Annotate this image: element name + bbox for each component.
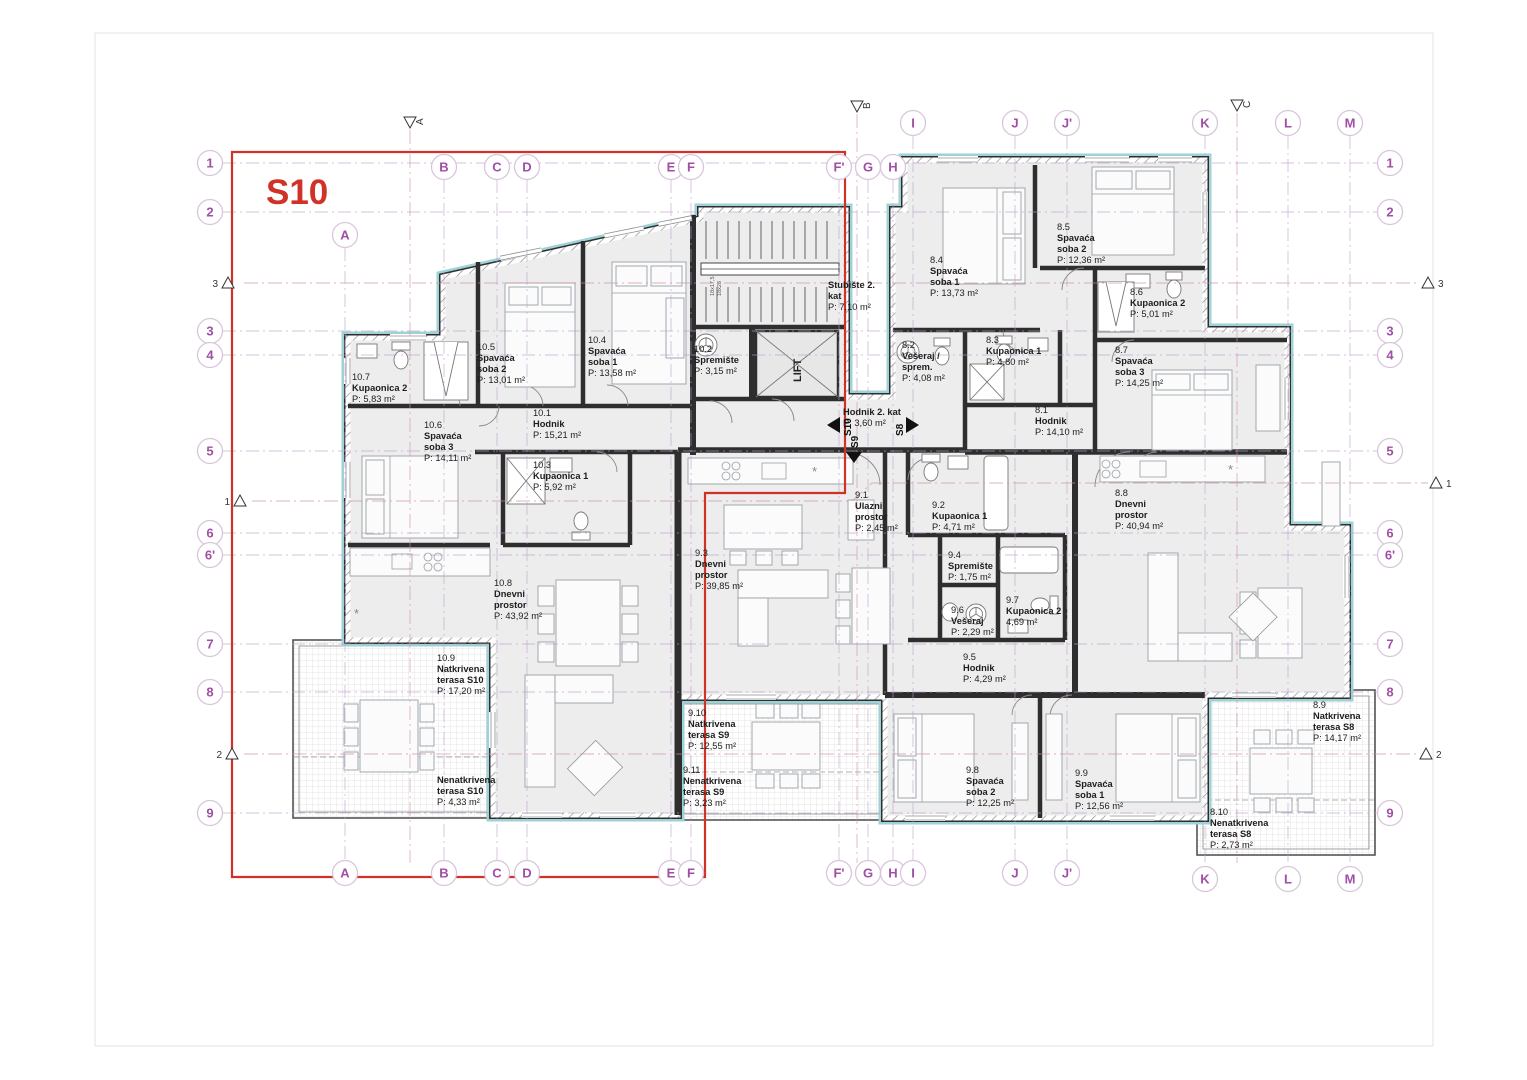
shower-icon bbox=[970, 364, 1004, 400]
grid-marker-D: D bbox=[515, 155, 540, 180]
svg-text:P: 4,29 m²: P: 4,29 m² bbox=[963, 674, 1006, 684]
toilet-icon bbox=[922, 454, 940, 481]
svg-text:9.2: 9.2 bbox=[932, 500, 945, 510]
terrace-table bbox=[1250, 730, 1314, 812]
grid-marker-6: 6 bbox=[1378, 521, 1403, 546]
grid-marker-B: B bbox=[432, 861, 457, 886]
svg-text:C: C bbox=[492, 160, 502, 175]
grid-marker-9: 9 bbox=[198, 801, 223, 826]
svg-text:Kupaonica 2: Kupaonica 2 bbox=[1006, 606, 1061, 616]
svg-text:Hodnik: Hodnik bbox=[1035, 416, 1067, 426]
svg-text:sprem.: sprem. bbox=[902, 362, 933, 372]
sink-icon bbox=[948, 456, 968, 469]
toilet-icon bbox=[1166, 272, 1182, 298]
svg-text:kat: kat bbox=[828, 291, 841, 301]
grid-marker-L: L bbox=[1276, 867, 1301, 892]
svg-text:10.1: 10.1 bbox=[533, 408, 551, 418]
svg-text:soba 1: soba 1 bbox=[1075, 790, 1104, 800]
svg-text:A: A bbox=[340, 866, 350, 881]
grid-marker-D: D bbox=[515, 861, 540, 886]
svg-text:8: 8 bbox=[1386, 685, 1393, 700]
svg-text:8.5: 8.5 bbox=[1057, 222, 1070, 232]
svg-text:8.10: 8.10 bbox=[1210, 807, 1228, 817]
bed bbox=[1152, 370, 1232, 450]
grid-marker-F: F bbox=[679, 861, 704, 886]
svg-text:Stubište 2.: Stubište 2. bbox=[828, 280, 875, 290]
svg-text:6': 6' bbox=[1385, 548, 1395, 563]
wardrobe bbox=[666, 298, 684, 358]
svg-text:9.5: 9.5 bbox=[963, 652, 976, 662]
grid-marker-8: 8 bbox=[1378, 680, 1403, 705]
svg-text:M: M bbox=[1345, 116, 1356, 131]
svg-text:Nenatkrivena: Nenatkrivena bbox=[683, 776, 742, 786]
dining-table bbox=[538, 580, 638, 666]
svg-text:9.10: 9.10 bbox=[688, 708, 706, 718]
kitchen-counter: * bbox=[1100, 456, 1265, 482]
svg-text:J: J bbox=[1011, 116, 1018, 131]
svg-text:8.8: 8.8 bbox=[1115, 488, 1128, 498]
svg-text:Kupaonica 1: Kupaonica 1 bbox=[986, 346, 1041, 356]
svg-text:*: * bbox=[1228, 462, 1233, 477]
svg-text:P: 4,33 m²: P: 4,33 m² bbox=[437, 797, 480, 807]
grid-marker-6': 6' bbox=[1378, 543, 1403, 568]
svg-text:P: 3,23 m²: P: 3,23 m² bbox=[683, 798, 726, 808]
svg-text:8.7: 8.7 bbox=[1115, 345, 1128, 355]
svg-text:P: 5,01 m²: P: 5,01 m² bbox=[1130, 309, 1173, 319]
svg-text:Spavaća: Spavaća bbox=[477, 353, 516, 363]
svg-text:9.8: 9.8 bbox=[966, 765, 979, 775]
svg-text:Kupaonica 2: Kupaonica 2 bbox=[352, 383, 407, 393]
unit-s10-title: S10 bbox=[266, 173, 328, 212]
shower-icon bbox=[1098, 282, 1134, 332]
svg-text:8.4: 8.4 bbox=[930, 255, 943, 265]
svg-text:terasa S10: terasa S10 bbox=[437, 675, 484, 685]
svg-text:F': F' bbox=[833, 160, 844, 175]
svg-text:1: 1 bbox=[1386, 156, 1393, 171]
grid-marker-F': F' bbox=[827, 861, 852, 886]
grid-marker-A: A bbox=[333, 223, 358, 248]
svg-text:soba 2: soba 2 bbox=[1057, 244, 1086, 254]
grid-marker-H: H bbox=[881, 155, 906, 180]
svg-text:8.9: 8.9 bbox=[1313, 700, 1326, 710]
grid-marker-G: G bbox=[856, 861, 881, 886]
terrace-table bbox=[344, 700, 434, 772]
section-marker-2: 2 bbox=[216, 748, 238, 761]
svg-text:P: 5,92 m²: P: 5,92 m² bbox=[533, 482, 576, 492]
svg-text:Spavaća: Spavaća bbox=[588, 346, 627, 356]
svg-text:P: 1,75 m²: P: 1,75 m² bbox=[948, 572, 991, 582]
svg-text:terasa S9: terasa S9 bbox=[683, 787, 724, 797]
svg-text:1: 1 bbox=[224, 497, 230, 508]
section-marker-C: C bbox=[1231, 100, 1253, 111]
svg-text:prostor: prostor bbox=[1115, 510, 1148, 520]
wardrobe bbox=[1322, 462, 1340, 526]
svg-text:H: H bbox=[888, 160, 897, 175]
svg-text:C: C bbox=[492, 866, 502, 881]
grid-marker-I: I bbox=[901, 111, 926, 136]
svg-text:10.8: 10.8 bbox=[494, 578, 512, 588]
svg-text:3: 3 bbox=[1386, 324, 1393, 339]
svg-text:D: D bbox=[522, 160, 531, 175]
svg-text:C: C bbox=[1242, 101, 1253, 108]
svg-text:Hodnik 2. kat: Hodnik 2. kat bbox=[843, 407, 901, 417]
svg-text:2: 2 bbox=[1386, 205, 1393, 220]
svg-text:P: 14,10 m²: P: 14,10 m² bbox=[1035, 427, 1083, 437]
section-marker-2: 2 bbox=[1420, 748, 1442, 761]
svg-text:J': J' bbox=[1062, 866, 1072, 881]
svg-text:soba 1: soba 1 bbox=[930, 277, 959, 287]
bed bbox=[505, 283, 575, 387]
section-marker-1: 1 bbox=[224, 495, 246, 508]
svg-text:prostor: prostor bbox=[695, 570, 728, 580]
svg-text:P: 12,36 m²: P: 12,36 m² bbox=[1057, 255, 1105, 265]
grid-marker-7: 7 bbox=[1378, 632, 1403, 657]
shower-icon bbox=[424, 342, 468, 400]
svg-text:P: 39,85 m²: P: 39,85 m² bbox=[695, 581, 743, 591]
svg-text:M: M bbox=[1345, 872, 1356, 887]
svg-text:J: J bbox=[1011, 866, 1018, 881]
svg-text:7: 7 bbox=[1386, 637, 1393, 652]
svg-text:Spavaća: Spavaća bbox=[966, 776, 1005, 786]
building: 18x17,5 18x28 LIFT bbox=[293, 156, 1375, 855]
svg-text:6: 6 bbox=[206, 526, 213, 541]
dining-table bbox=[836, 568, 890, 644]
grid-marker-G: G bbox=[856, 155, 881, 180]
svg-text:A: A bbox=[340, 228, 350, 243]
svg-text:J': J' bbox=[1062, 116, 1072, 131]
section-marker-B: B bbox=[851, 101, 873, 112]
svg-text:Vešeraj /: Vešeraj / bbox=[902, 351, 940, 361]
svg-text:P: 13,01 m²: P: 13,01 m² bbox=[477, 375, 525, 385]
svg-text:8.3: 8.3 bbox=[986, 335, 999, 345]
svg-text:I: I bbox=[911, 866, 915, 881]
grid-marker-1: 1 bbox=[198, 151, 223, 176]
svg-text:Ulazni: Ulazni bbox=[855, 501, 882, 511]
svg-text:P: 7,10 m²: P: 7,10 m² bbox=[828, 302, 871, 312]
svg-text:P: 13,58 m²: P: 13,58 m² bbox=[588, 368, 636, 378]
svg-text:H: H bbox=[888, 866, 897, 881]
sink-icon bbox=[550, 458, 572, 472]
svg-text:Spavaća: Spavaća bbox=[1057, 233, 1096, 243]
svg-text:Hodnik: Hodnik bbox=[533, 419, 565, 429]
svg-text:Spremište: Spremište bbox=[948, 561, 993, 571]
svg-text:soba 2: soba 2 bbox=[966, 787, 995, 797]
svg-text:Vešeraj: Vešeraj bbox=[951, 616, 984, 626]
svg-text:9.11: 9.11 bbox=[683, 765, 700, 775]
svg-text:Spavaća: Spavaća bbox=[1115, 356, 1154, 366]
svg-text:Nenatkrivena: Nenatkrivena bbox=[437, 775, 496, 785]
grid-marker-7: 7 bbox=[198, 632, 223, 657]
grid-marker-J: J bbox=[1003, 111, 1028, 136]
grid-marker-5: 5 bbox=[198, 439, 223, 464]
elevator: LIFT bbox=[756, 331, 838, 397]
svg-text:9: 9 bbox=[1386, 806, 1393, 821]
svg-text:A: A bbox=[415, 118, 426, 125]
svg-text:Spremište: Spremište bbox=[694, 355, 739, 365]
svg-text:P: 43,92 m²: P: 43,92 m² bbox=[494, 611, 542, 621]
grid-marker-5: 5 bbox=[1378, 439, 1403, 464]
grid-marker-A: A bbox=[333, 861, 358, 886]
svg-text:P: 12,56 m²: P: 12,56 m² bbox=[1075, 801, 1123, 811]
grid-marker-L: L bbox=[1276, 111, 1301, 136]
svg-text:S8: S8 bbox=[895, 423, 906, 436]
svg-text:F: F bbox=[687, 160, 695, 175]
svg-text:8: 8 bbox=[206, 685, 213, 700]
svg-text:P: 2,73 m²: P: 2,73 m² bbox=[1210, 840, 1253, 850]
grid-marker-F': F' bbox=[827, 155, 852, 180]
svg-text:2: 2 bbox=[206, 205, 213, 220]
svg-text:P: 15,21 m²: P: 15,21 m² bbox=[533, 430, 581, 440]
section-marker-3: 3 bbox=[212, 277, 234, 290]
svg-text:P: 14,25 m²: P: 14,25 m² bbox=[1115, 378, 1163, 388]
svg-text:Natkrivena: Natkrivena bbox=[1313, 711, 1361, 721]
svg-text:4: 4 bbox=[1386, 348, 1394, 363]
svg-text:prostor: prostor bbox=[494, 600, 527, 610]
svg-text:S9: S9 bbox=[850, 435, 861, 448]
svg-text:soba 3: soba 3 bbox=[424, 442, 453, 452]
svg-text:F: F bbox=[687, 866, 695, 881]
grid-marker-M: M bbox=[1338, 867, 1363, 892]
svg-text:*: * bbox=[354, 606, 359, 621]
svg-text:3: 3 bbox=[1438, 279, 1444, 290]
svg-text:6': 6' bbox=[205, 548, 215, 563]
svg-text:*: * bbox=[812, 464, 817, 479]
svg-text:G: G bbox=[863, 866, 873, 881]
svg-text:L: L bbox=[1284, 872, 1292, 887]
svg-text:P: 2,45 m²: P: 2,45 m² bbox=[855, 523, 898, 533]
svg-text:8.1: 8.1 bbox=[1035, 405, 1048, 415]
bathtub-icon bbox=[1000, 547, 1058, 573]
floor-plan-drawing: 18x17,5 18x28 LIFT bbox=[0, 0, 1527, 1080]
svg-text:P: 12,25 m²: P: 12,25 m² bbox=[966, 798, 1014, 808]
wardrobe bbox=[1256, 365, 1280, 431]
svg-text:1: 1 bbox=[206, 156, 213, 171]
wardrobe bbox=[1046, 714, 1062, 800]
toilet-icon bbox=[392, 342, 410, 369]
svg-text:10.2: 10.2 bbox=[694, 344, 712, 354]
svg-text:P: 4,71 m²: P: 4,71 m² bbox=[932, 522, 975, 532]
grid-marker-C: C bbox=[485, 861, 510, 886]
svg-text:9.4: 9.4 bbox=[948, 550, 961, 560]
svg-text:Hodnik: Hodnik bbox=[963, 663, 995, 673]
svg-text:P: 17,20 m²: P: 17,20 m² bbox=[437, 686, 485, 696]
svg-text:Dnevni: Dnevni bbox=[494, 589, 525, 599]
grid-marker-J': J' bbox=[1055, 861, 1080, 886]
svg-text:G: G bbox=[863, 160, 873, 175]
dining-table bbox=[724, 505, 802, 565]
svg-text:Nenatkrivena: Nenatkrivena bbox=[1210, 818, 1269, 828]
svg-text:Spavaća: Spavaća bbox=[930, 266, 969, 276]
svg-text:Spavaća: Spavaća bbox=[1075, 779, 1114, 789]
svg-text:F': F' bbox=[833, 866, 844, 881]
svg-text:9.9: 9.9 bbox=[1075, 768, 1088, 778]
grid-marker-B: B bbox=[432, 155, 457, 180]
grid-marker-4: 4 bbox=[198, 343, 223, 368]
terrace-table bbox=[752, 704, 820, 788]
svg-text:9: 9 bbox=[206, 806, 213, 821]
svg-text:P: 4,80 m²: P: 4,80 m² bbox=[986, 357, 1029, 367]
grid-marker-8: 8 bbox=[198, 680, 223, 705]
svg-text:Dnevni: Dnevni bbox=[1115, 499, 1146, 509]
svg-text:10.7: 10.7 bbox=[352, 372, 370, 382]
grid-marker-2: 2 bbox=[198, 200, 223, 225]
svg-text:5: 5 bbox=[206, 444, 213, 459]
svg-text:9.1: 9.1 bbox=[855, 490, 868, 500]
svg-text:4: 4 bbox=[206, 348, 214, 363]
svg-text:P: 4,08 m²: P: 4,08 m² bbox=[902, 373, 945, 383]
svg-text:Kupaonica 2: Kupaonica 2 bbox=[1130, 298, 1185, 308]
bed bbox=[894, 714, 974, 802]
grid-marker-J': J' bbox=[1055, 111, 1080, 136]
svg-text:10.9: 10.9 bbox=[437, 653, 455, 663]
svg-text:terasa S8: terasa S8 bbox=[1313, 722, 1354, 732]
grid-marker-J: J bbox=[1003, 861, 1028, 886]
bed bbox=[1092, 167, 1174, 255]
svg-text:K: K bbox=[1200, 116, 1210, 131]
svg-text:9.7: 9.7 bbox=[1006, 595, 1019, 605]
svg-text:D: D bbox=[522, 866, 531, 881]
svg-text:P: 5,83 m²: P: 5,83 m² bbox=[352, 394, 395, 404]
svg-text:Natkrivena: Natkrivena bbox=[437, 664, 485, 674]
svg-text:2: 2 bbox=[1436, 750, 1442, 761]
svg-text:9.3: 9.3 bbox=[695, 548, 708, 558]
grid-marker-3: 3 bbox=[1378, 319, 1403, 344]
grid-marker-K: K bbox=[1193, 111, 1218, 136]
grid-marker-1: 1 bbox=[1378, 151, 1403, 176]
svg-text:terasa S8: terasa S8 bbox=[1210, 829, 1251, 839]
svg-text:5: 5 bbox=[1386, 444, 1393, 459]
svg-text:10.5: 10.5 bbox=[477, 342, 495, 352]
svg-text:E: E bbox=[667, 160, 676, 175]
svg-text:terasa S9: terasa S9 bbox=[688, 730, 729, 740]
svg-text:3: 3 bbox=[206, 324, 213, 339]
svg-text:E: E bbox=[667, 866, 676, 881]
svg-text:1: 1 bbox=[1446, 479, 1452, 490]
svg-text:10.3: 10.3 bbox=[533, 460, 551, 470]
grid-marker-K: K bbox=[1193, 867, 1218, 892]
grid-marker-C: C bbox=[485, 155, 510, 180]
grid-marker-6': 6' bbox=[198, 543, 223, 568]
sink-icon bbox=[357, 344, 377, 358]
svg-text:K: K bbox=[1200, 872, 1210, 887]
svg-text:B: B bbox=[439, 866, 448, 881]
svg-text:7: 7 bbox=[206, 637, 213, 652]
svg-text:Kupaonica 1: Kupaonica 1 bbox=[533, 471, 588, 481]
bed bbox=[1116, 714, 1200, 802]
svg-text:soba 2: soba 2 bbox=[477, 364, 506, 374]
svg-text:2: 2 bbox=[216, 750, 222, 761]
lift-label: LIFT bbox=[792, 359, 804, 382]
svg-text:terasa S10: terasa S10 bbox=[437, 786, 484, 796]
grid-marker-3: 3 bbox=[198, 319, 223, 344]
svg-text:S10: S10 bbox=[843, 418, 854, 436]
svg-text:Spavaća: Spavaća bbox=[424, 431, 463, 441]
stairs-dimension: 18x17,5 bbox=[710, 276, 716, 296]
svg-text:Kupaonica 1: Kupaonica 1 bbox=[932, 511, 987, 521]
grid-marker-F: F bbox=[679, 155, 704, 180]
bathtub-icon bbox=[984, 456, 1008, 530]
svg-text:I: I bbox=[911, 116, 915, 131]
svg-text:P: 13,73 m²: P: 13,73 m² bbox=[930, 288, 978, 298]
grid-marker-6: 6 bbox=[198, 521, 223, 546]
section-marker-A: A bbox=[404, 117, 426, 128]
svg-text:P: 14,11 m²: P: 14,11 m² bbox=[424, 453, 471, 463]
svg-text:Natkrivena: Natkrivena bbox=[688, 719, 736, 729]
svg-text:P: 12,55 m²: P: 12,55 m² bbox=[688, 741, 736, 751]
svg-text:9.6: 9.6 bbox=[951, 605, 964, 615]
svg-text:B: B bbox=[439, 160, 448, 175]
grid-marker-I: I bbox=[901, 861, 926, 886]
svg-text:prostor: prostor bbox=[855, 512, 888, 522]
svg-text:soba 1: soba 1 bbox=[588, 357, 617, 367]
kitchen-counter: * bbox=[688, 458, 853, 484]
svg-text:10.6: 10.6 bbox=[424, 420, 442, 430]
svg-text:P: 40,94 m²: P: 40,94 m² bbox=[1115, 521, 1163, 531]
grid-marker-M: M bbox=[1338, 111, 1363, 136]
svg-text:10.4: 10.4 bbox=[588, 335, 606, 345]
svg-text:Dnevni: Dnevni bbox=[695, 559, 726, 569]
svg-text:L: L bbox=[1284, 116, 1292, 131]
svg-text:8.6: 8.6 bbox=[1130, 287, 1143, 297]
svg-text:P: 14,17 m²: P: 14,17 m² bbox=[1313, 733, 1361, 743]
svg-text:3: 3 bbox=[212, 279, 218, 290]
svg-text:8.2: 8.2 bbox=[902, 340, 915, 350]
svg-text:P: 2,29 m²: P: 2,29 m² bbox=[951, 627, 994, 637]
svg-text:soba 3: soba 3 bbox=[1115, 367, 1144, 377]
svg-text:P: 3,15 m²: P: 3,15 m² bbox=[694, 366, 737, 376]
wardrobe bbox=[1012, 723, 1028, 800]
grid-marker-9: 9 bbox=[1378, 801, 1403, 826]
svg-text:4,69 m²: 4,69 m² bbox=[1006, 617, 1038, 627]
grid-marker-4: 4 bbox=[1378, 343, 1403, 368]
svg-text:B: B bbox=[862, 102, 873, 109]
svg-text:6: 6 bbox=[1386, 526, 1393, 541]
grid-marker-2: 2 bbox=[1378, 200, 1403, 225]
toilet-icon bbox=[572, 512, 590, 540]
